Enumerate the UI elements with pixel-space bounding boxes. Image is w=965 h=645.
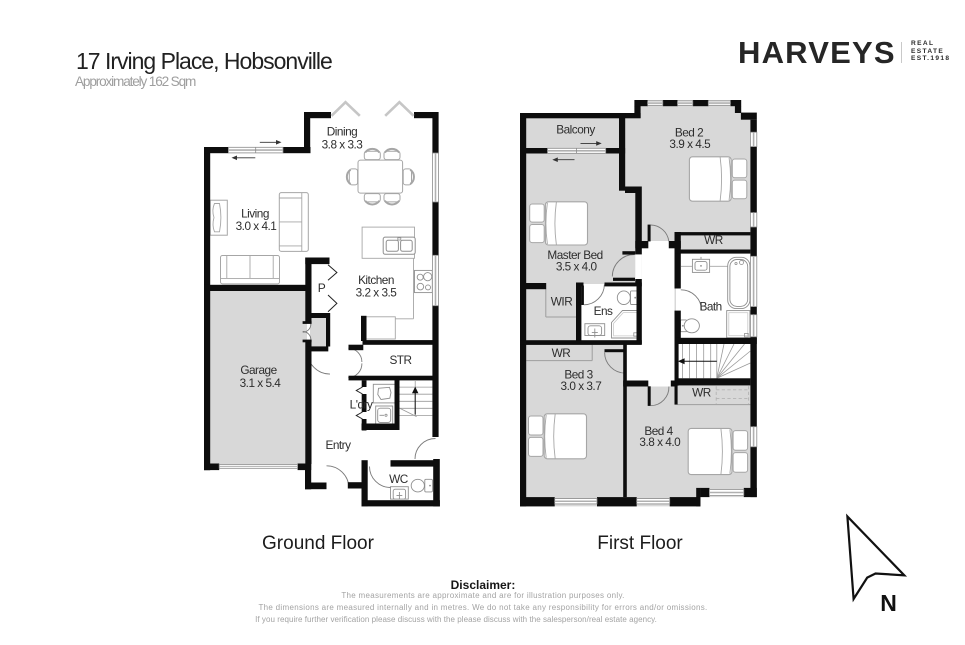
svg-text:Ens: Ens [594,304,613,318]
svg-text:L'dry: L'dry [350,397,373,411]
svg-text:WR: WR [704,233,723,247]
svg-text:N: N [880,590,897,616]
svg-text:WR: WR [692,386,711,400]
svg-text:3.2 x 3.5: 3.2 x 3.5 [356,286,398,300]
svg-text:WR: WR [552,346,571,360]
svg-text:3.5 x 4.0: 3.5 x 4.0 [556,259,598,273]
svg-text:WC: WC [389,472,409,486]
svg-text:STR: STR [389,353,411,367]
svg-text:Entry: Entry [325,438,351,452]
svg-text:3.0 x 4.1: 3.0 x 4.1 [236,219,277,233]
svg-text:Balcony: Balcony [556,123,595,137]
svg-text:3.8 x 3.3: 3.8 x 3.3 [322,137,364,151]
svg-text:Garage: Garage [240,363,277,377]
svg-text:P: P [318,281,326,295]
svg-text:3.8 x 4.0: 3.8 x 4.0 [639,435,681,449]
svg-text:3.0 x 3.7: 3.0 x 3.7 [561,379,602,393]
svg-text:3.9 x 4.5: 3.9 x 4.5 [669,137,711,151]
svg-text:3.1 x 5.4: 3.1 x 5.4 [240,376,282,390]
svg-text:Bath: Bath [699,300,721,314]
svg-text:WIR: WIR [551,294,572,308]
